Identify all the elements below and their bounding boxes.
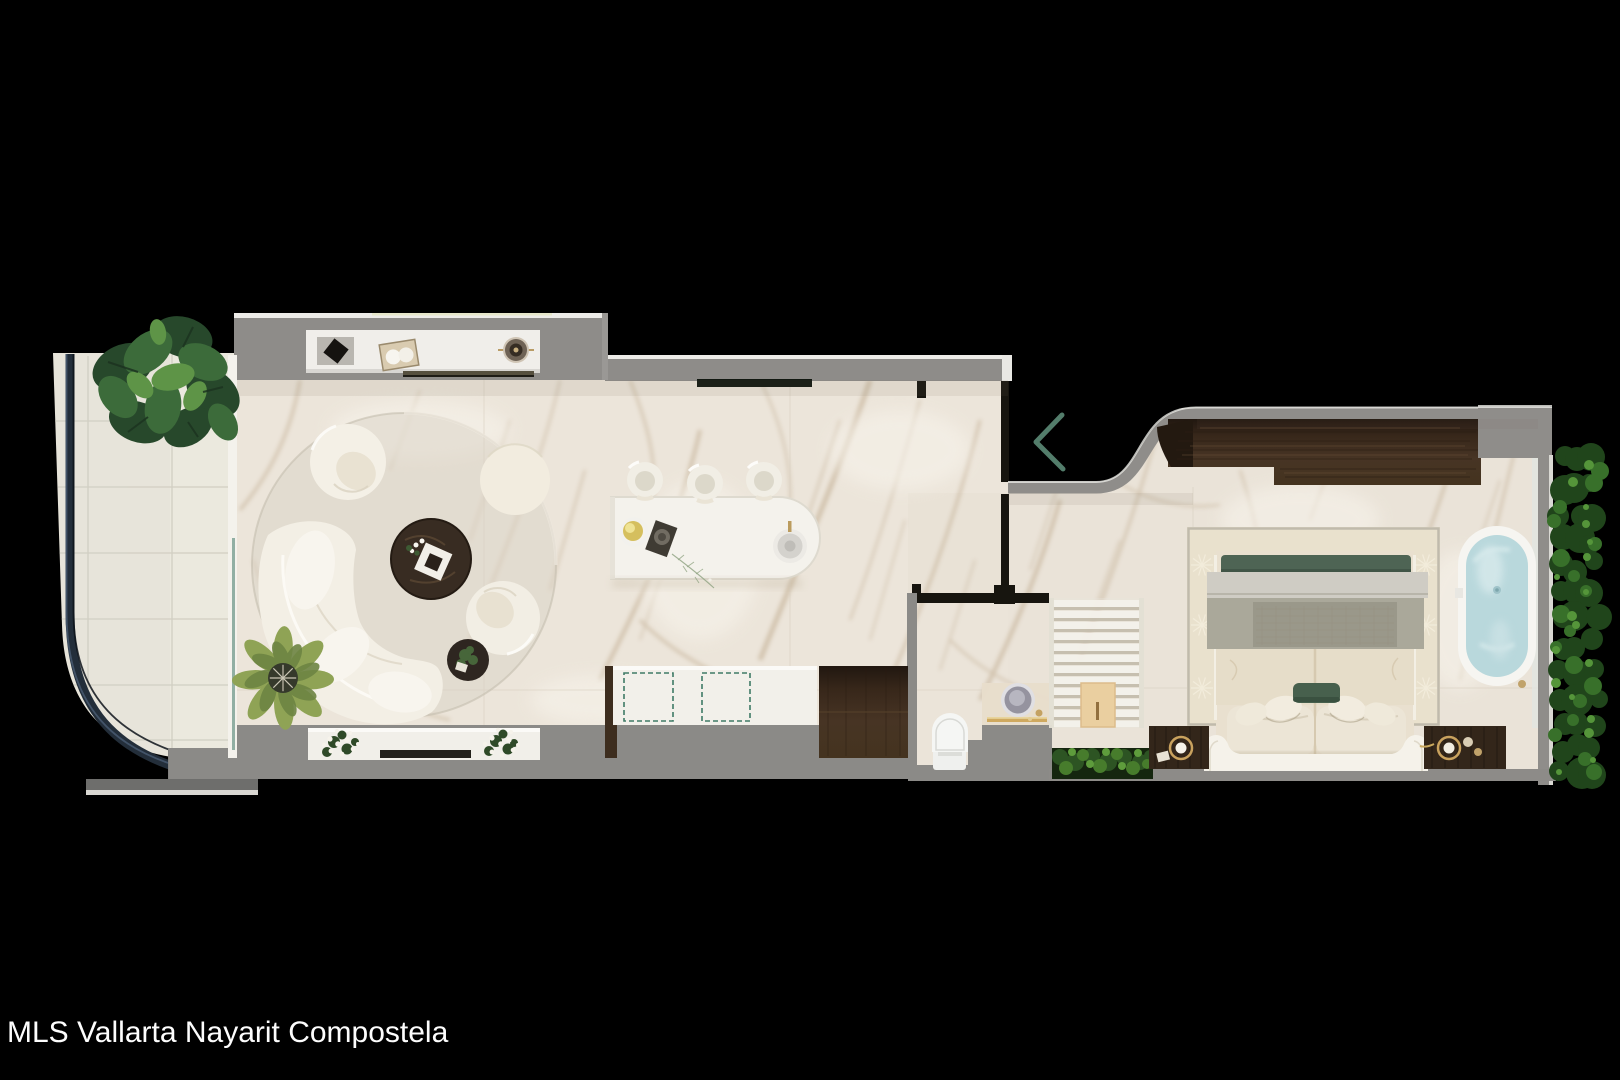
svg-text:MLS Vallarta Nayarit Compostel: MLS Vallarta Nayarit Compostela [7,1016,449,1049]
